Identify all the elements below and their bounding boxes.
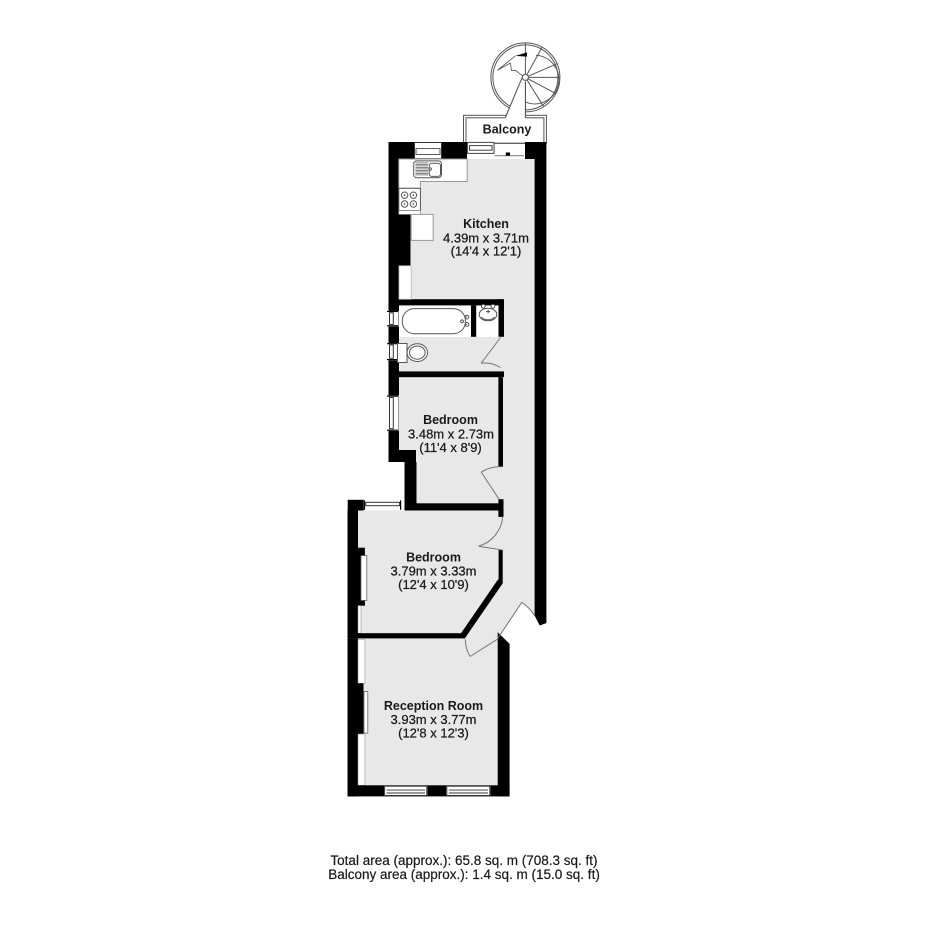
svg-text:Bedroom: Bedroom [423, 413, 478, 427]
svg-text:(14'4 x 12'1): (14'4 x 12'1) [451, 244, 522, 259]
svg-text:Reception Room: Reception Room [384, 699, 483, 713]
svg-text:(12'8 x 12'3): (12'8 x 12'3) [398, 726, 469, 741]
svg-text:Balcony: Balcony [483, 123, 532, 137]
svg-text:(11'4 x 8'9): (11'4 x 8'9) [419, 440, 482, 455]
svg-text:Kitchen: Kitchen [463, 217, 509, 231]
svg-text:Balcony area (approx.): 1.4 sq: Balcony area (approx.): 1.4 sq. m (15.0 … [328, 867, 600, 882]
svg-text:(12'4 x 10'9): (12'4 x 10'9) [398, 577, 469, 592]
svg-text:Total area (approx.): 65.8 sq.: Total area (approx.): 65.8 sq. m (708.3 … [330, 853, 597, 868]
svg-text:Bedroom: Bedroom [406, 551, 461, 565]
